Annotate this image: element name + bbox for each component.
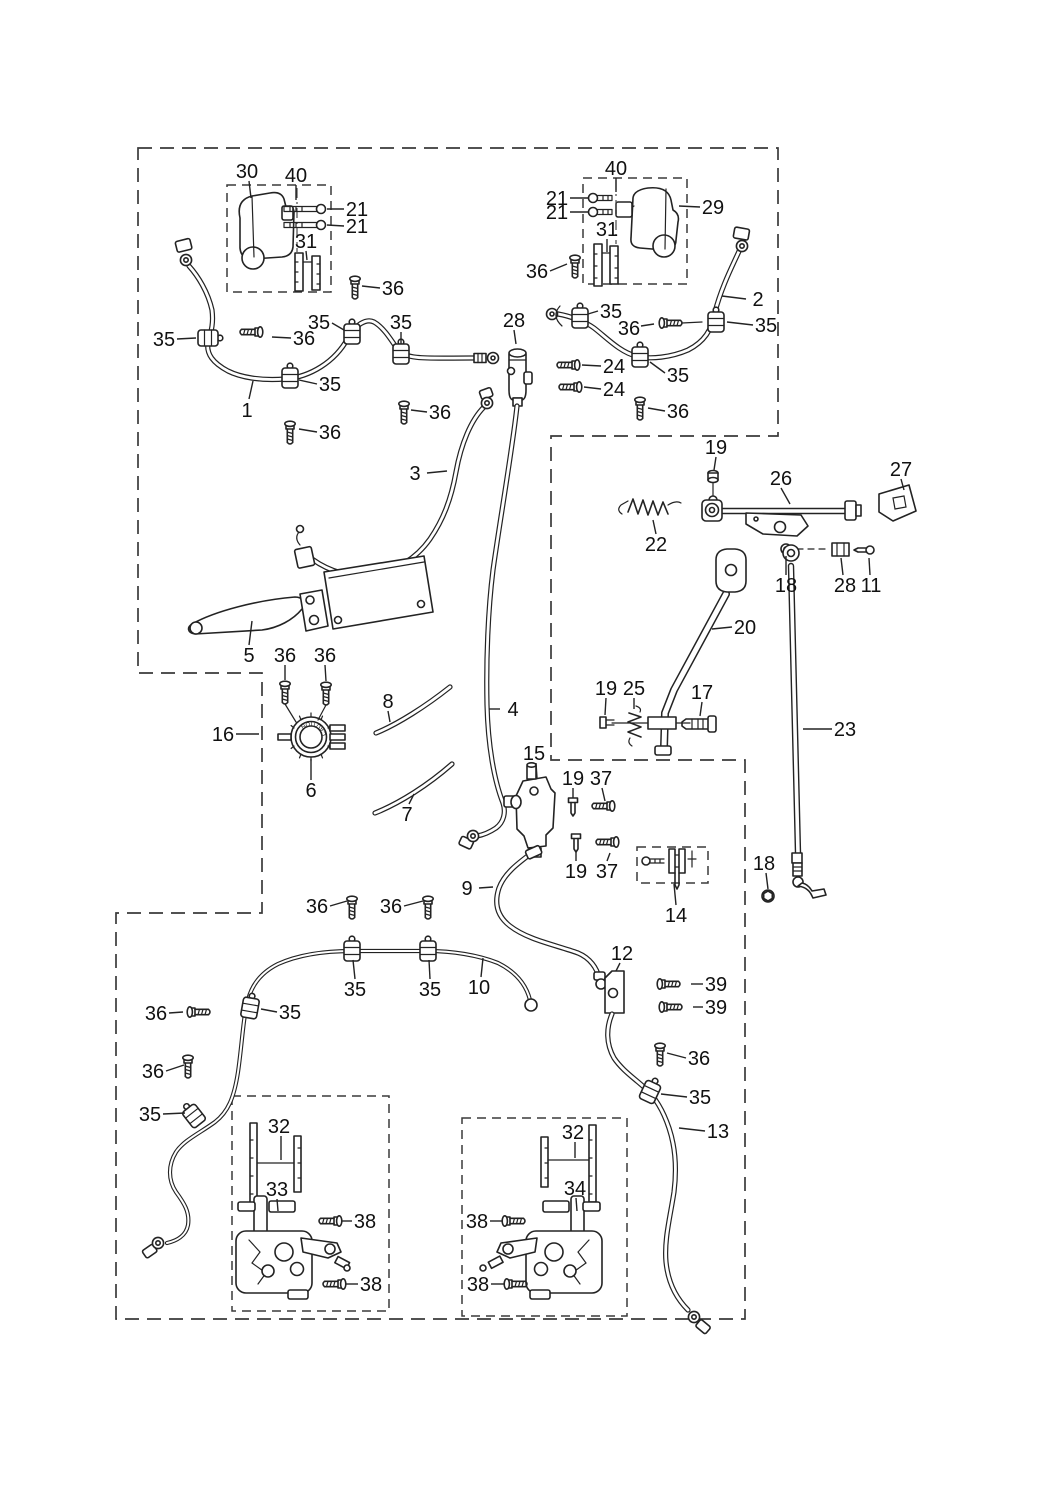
part-9-brake-hose: [497, 845, 606, 989]
leader-line: [712, 627, 732, 629]
part-28-spacer: [832, 543, 849, 556]
part-number-label: 26: [770, 468, 792, 490]
part-number-label: 20: [734, 617, 756, 639]
leader-line: [327, 225, 344, 226]
part-number-label: 36: [274, 645, 296, 667]
clamp-35: [708, 307, 724, 332]
part-number-label: 31: [295, 231, 317, 253]
part-number-label: 13: [707, 1121, 729, 1143]
part-number-label: 19: [595, 678, 617, 700]
part-18-hex-nut: [762, 890, 774, 902]
part-number-label: 35: [279, 1002, 301, 1024]
leader-line: [325, 665, 326, 681]
part-number-label: 35: [419, 979, 441, 1001]
part-number-label: 19: [565, 861, 587, 883]
part-number-label: 21: [546, 202, 568, 224]
part-31-pads-right: [594, 244, 618, 286]
leader-line: [429, 960, 430, 979]
brake-system-exploded-diagram: CAUTION: [0, 0, 1040, 1500]
leader-line: [163, 1113, 185, 1114]
leader-line: [648, 408, 665, 411]
part-30-switch-housing: [239, 188, 297, 269]
bolt-36: [285, 421, 295, 444]
leader-line: [727, 322, 753, 325]
part-15-proportioning-valve: [504, 763, 555, 857]
part-number-label: 36: [667, 401, 689, 423]
part-33-brake-caliper: [236, 1196, 350, 1299]
part-number-label: 38: [466, 1211, 488, 1233]
part-number-label: 4: [507, 699, 518, 721]
clamp-35: [632, 342, 648, 367]
part-1-front-brake-hose: [175, 238, 499, 379]
part-23-rear-rod: [783, 545, 826, 898]
leader-line: [166, 1065, 184, 1071]
clamp-35: [282, 363, 298, 388]
clamp-35: [344, 936, 360, 961]
leader-line: [653, 520, 656, 534]
leader-line: [481, 958, 483, 977]
part-number-label: 36: [293, 328, 315, 350]
part-number-label: 36: [618, 318, 640, 340]
leader-line: [479, 887, 493, 888]
bolt-39: [657, 979, 680, 989]
bolt-36: [240, 327, 263, 337]
part-number-label: 28: [834, 575, 856, 597]
bolt-36: [655, 1043, 665, 1066]
part-25-spring: [628, 706, 641, 746]
leader-line: [169, 1012, 183, 1013]
part-number-label: 38: [467, 1274, 489, 1296]
leader-line: [536, 763, 537, 778]
bolt-24: [559, 382, 582, 392]
part-26-brake-rod: [702, 500, 861, 536]
bolt-36: [399, 401, 409, 424]
part-12-bracket: [605, 971, 624, 1013]
part-number-label: 24: [603, 379, 625, 401]
leader-line: [299, 380, 317, 384]
bolt-39: [659, 1002, 682, 1012]
leader-line: [249, 181, 251, 198]
part-number-label: 35: [319, 374, 341, 396]
part-number-label: 39: [705, 997, 727, 1019]
part-number-label: 36: [314, 645, 336, 667]
part-number-label: 36: [429, 402, 451, 424]
part-number-label: 27: [890, 459, 912, 481]
part-number-label: 35: [153, 329, 175, 351]
part-number-label: 35: [755, 315, 777, 337]
leader-line: [841, 558, 843, 575]
part-number-label: 40: [605, 158, 627, 180]
bolt-36: [347, 896, 357, 919]
part-number-label: 32: [562, 1122, 584, 1144]
clamp-35: [240, 992, 260, 1019]
bolt-36: [187, 1007, 210, 1017]
part-number-label: 8: [382, 691, 393, 713]
bolt-37: [596, 837, 619, 847]
part-number-label: 18: [775, 575, 797, 597]
leader-line: [514, 330, 516, 344]
part-22-return-spring: [619, 499, 681, 515]
part-number-label: 25: [623, 678, 645, 700]
part-number-label: 35: [390, 312, 412, 334]
part-number-label: 33: [266, 1179, 288, 1201]
part-number-label: 3: [409, 463, 420, 485]
clamp-35: [572, 303, 588, 328]
part-number-label: 22: [645, 534, 667, 556]
bolt-36: [570, 255, 580, 278]
part-number-label: 37: [596, 861, 618, 883]
part-number-label: 36: [382, 278, 404, 300]
part-number-label: 24: [603, 356, 625, 378]
part-number-label: 35: [139, 1104, 161, 1126]
part-number-label: 36: [319, 422, 341, 444]
part-number-label: 28: [503, 310, 525, 332]
part-21-screws-right: [589, 194, 613, 217]
part-number-label: 35: [667, 365, 689, 387]
leader-line: [605, 698, 606, 715]
part-number-label: 15: [523, 743, 545, 765]
part-number-label: 36: [145, 1003, 167, 1025]
part-number-label: 11: [861, 575, 882, 597]
leader-line: [404, 901, 423, 906]
bolt-36: [183, 1055, 193, 1078]
part-number-label: 10: [468, 977, 490, 999]
part-number-label: 38: [360, 1274, 382, 1296]
part-number-label: 37: [590, 768, 612, 790]
leader-line: [330, 901, 347, 906]
leader-line: [700, 702, 702, 716]
part-11-screw: [854, 546, 874, 554]
leader-line: [679, 206, 700, 207]
part-6-reservoir-cap: CAUTION: [278, 713, 345, 761]
leader-line: [650, 362, 665, 373]
pin-19: [569, 798, 578, 816]
leader-line: [661, 1094, 687, 1097]
part-number-label: 34: [564, 1178, 586, 1200]
part-number-label: 9: [461, 878, 472, 900]
part-number-label: 35: [689, 1087, 711, 1109]
part-number-label: 38: [354, 1211, 376, 1233]
part-7-hose: [375, 764, 452, 813]
part-number-label: 23: [834, 719, 856, 741]
leader-line: [667, 1053, 686, 1058]
leader-line: [722, 296, 746, 299]
bolt-36: [321, 682, 331, 705]
part-number-label: 5: [243, 645, 254, 667]
part-number-label: 18: [753, 853, 775, 875]
leader-line: [411, 410, 427, 412]
part-number-label: 12: [611, 943, 633, 965]
part-number-label: 40: [285, 165, 307, 187]
clamp-35: [179, 1099, 207, 1128]
part-number-label: 36: [380, 896, 402, 918]
part-28-master-cylinder: [508, 349, 533, 406]
part-number-label: 1: [241, 400, 252, 422]
part-number-label: 16: [212, 724, 234, 746]
part-number-label: 2: [752, 289, 763, 311]
bolt-36: [635, 397, 645, 420]
clamp-35: [420, 936, 436, 961]
bolt-36: [280, 681, 290, 704]
part-number-label: 36: [526, 261, 548, 283]
part-number-label: 17: [691, 682, 713, 704]
leader-line: [249, 381, 253, 399]
part-29-switch-housing: [616, 180, 678, 257]
part-number-label: 36: [688, 1048, 710, 1070]
part-number-label: 21: [346, 216, 368, 238]
part-number-label: 14: [665, 905, 687, 927]
part-number-label: 19: [562, 768, 584, 790]
bolt-38: [323, 1279, 346, 1289]
leader-line: [272, 337, 291, 338]
part-number-label: 31: [596, 219, 618, 241]
part-number-label: 7: [401, 804, 412, 826]
leader-line: [299, 429, 317, 432]
part-5-brake-lever-assembly: [189, 526, 433, 635]
leader-line: [781, 488, 790, 504]
bolt-38: [502, 1216, 525, 1226]
part-number-label: 39: [705, 974, 727, 996]
part-number-label: 32: [268, 1116, 290, 1138]
leader-line: [641, 324, 654, 326]
bolt-38: [504, 1279, 527, 1289]
part-number-label: 36: [142, 1061, 164, 1083]
leader-line: [607, 853, 610, 861]
part-number-label: 19: [705, 437, 727, 459]
leader-line: [679, 1128, 705, 1131]
clamp-35: [198, 330, 223, 346]
leader-line: [584, 387, 601, 389]
bolt-24: [557, 360, 580, 370]
leader-line: [332, 323, 344, 330]
leader-line: [177, 338, 196, 339]
part-4-brake-hose: [458, 406, 517, 849]
leader-line: [353, 960, 355, 979]
bolt-36: [350, 276, 360, 299]
parts-diagram-page: CAUTION: [0, 0, 1040, 1500]
bolt-37: [592, 801, 615, 811]
leader-line: [869, 558, 870, 575]
bolt-36: [659, 318, 682, 328]
leader-line: [362, 286, 380, 288]
part-number-label: 6: [305, 780, 316, 802]
leader-line: [588, 311, 598, 314]
part-number-label: 30: [236, 161, 258, 183]
part-19-nut: [708, 471, 718, 505]
bolt-36: [423, 896, 433, 919]
leader-line: [261, 1009, 277, 1012]
part-number-label: 36: [306, 896, 328, 918]
pin-19: [572, 834, 581, 852]
leader-line: [550, 264, 567, 271]
bolt-38: [319, 1216, 342, 1226]
part-number-label: 35: [344, 979, 366, 1001]
part-27-bracket-plate: [879, 485, 916, 521]
clamp-35: [639, 1075, 664, 1104]
leader-line: [582, 365, 601, 366]
part-17-bolt: [682, 716, 716, 732]
part-number-label: 29: [702, 197, 724, 219]
leader-line: [766, 873, 768, 889]
leader-line: [427, 471, 447, 473]
